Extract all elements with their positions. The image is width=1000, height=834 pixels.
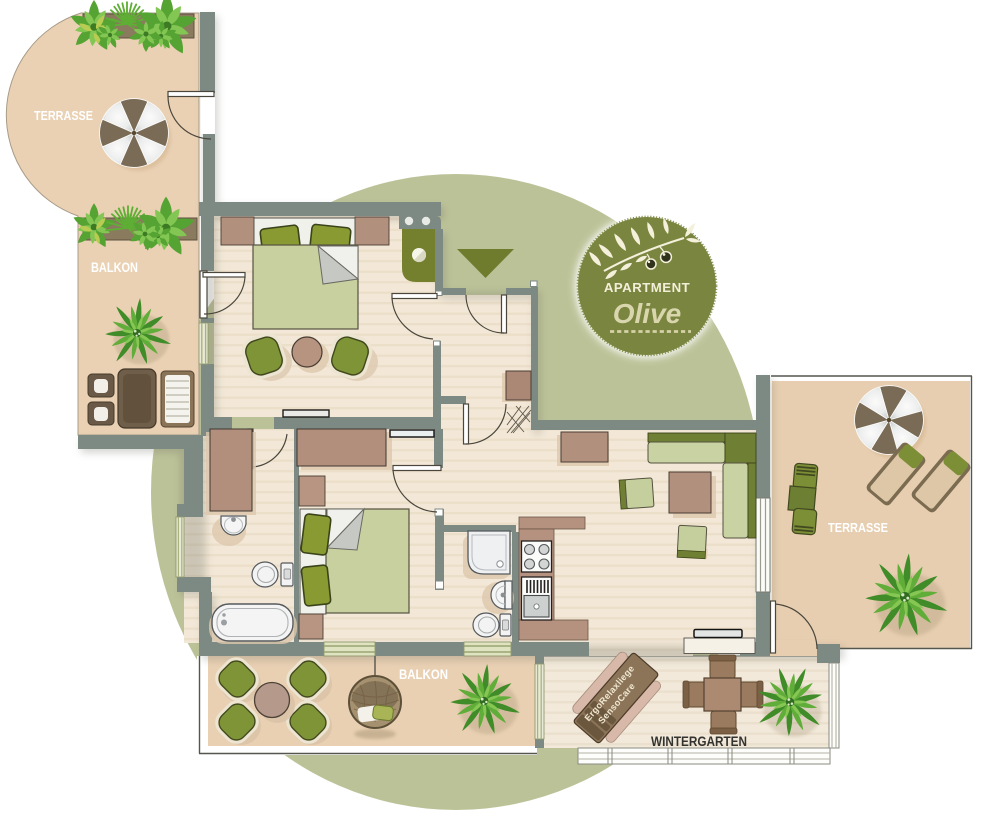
svg-text:APARTMENT: APARTMENT (604, 280, 690, 295)
svg-text:TERRASSE: TERRASSE (34, 108, 93, 123)
svg-text:BALKON: BALKON (399, 667, 448, 682)
svg-text:TERRASSE: TERRASSE (828, 520, 888, 535)
svg-text:Olive: Olive (613, 298, 681, 329)
svg-text:WINTERGARTEN: WINTERGARTEN (651, 733, 747, 749)
svg-text:BALKON: BALKON (91, 260, 138, 275)
